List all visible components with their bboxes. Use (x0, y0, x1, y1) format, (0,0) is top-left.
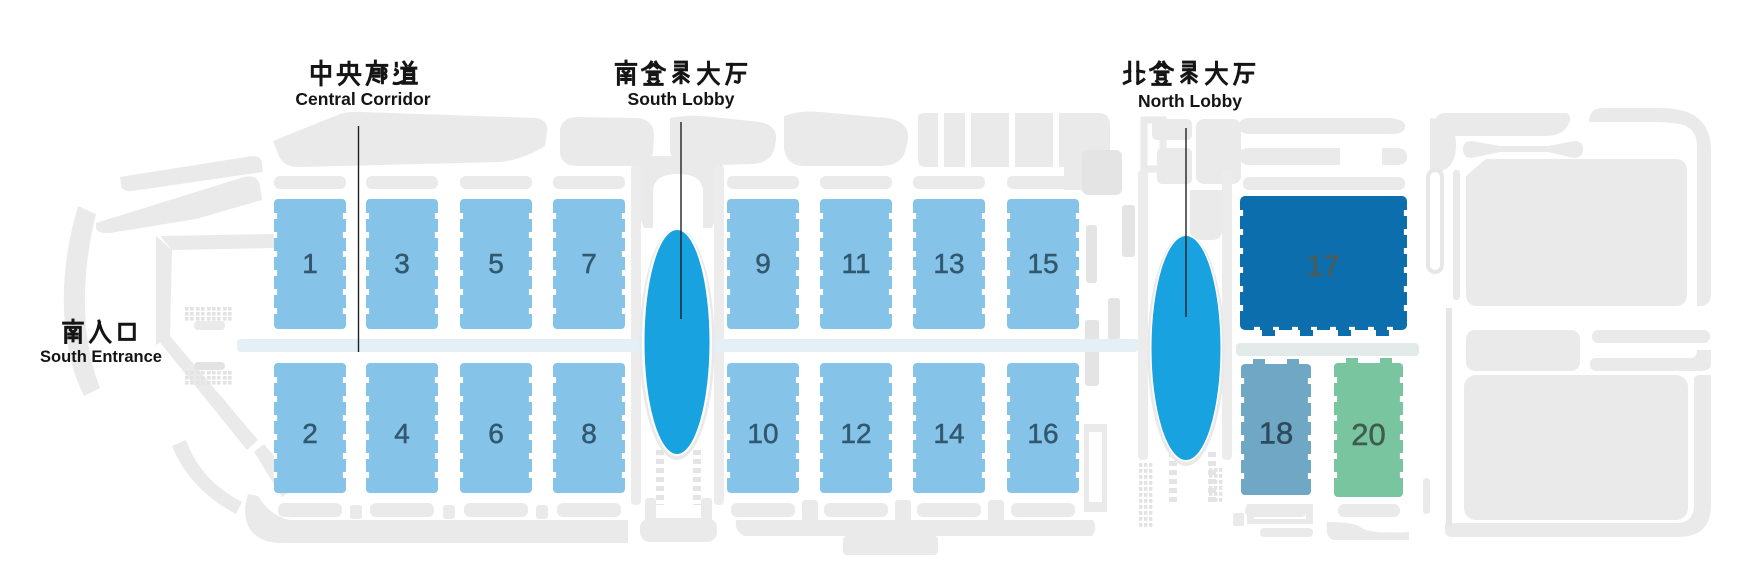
svg-text:South Entrance: South Entrance (40, 348, 162, 366)
svg-text:12: 12 (840, 418, 871, 449)
svg-text:20: 20 (1351, 417, 1385, 452)
svg-text:7: 7 (581, 248, 597, 279)
svg-text:16: 16 (1027, 418, 1058, 449)
svg-text:18: 18 (1259, 416, 1293, 451)
svg-text:14: 14 (933, 418, 964, 449)
svg-text:10: 10 (747, 418, 778, 449)
svg-text:5: 5 (488, 248, 504, 279)
svg-text:4: 4 (394, 418, 410, 449)
svg-text:17: 17 (1306, 250, 1339, 283)
svg-text:15: 15 (1027, 248, 1058, 279)
svg-text:2: 2 (302, 418, 318, 449)
svg-text:1: 1 (302, 248, 318, 279)
svg-text:9: 9 (755, 248, 771, 279)
svg-text:North Lobby: North Lobby (1138, 91, 1242, 111)
svg-text:6: 6 (488, 418, 504, 449)
svg-text:Central Corridor: Central Corridor (295, 89, 430, 109)
svg-text:11: 11 (841, 248, 870, 279)
svg-text:3: 3 (394, 248, 410, 279)
svg-text:13: 13 (933, 248, 964, 279)
svg-text:8: 8 (581, 418, 597, 449)
svg-text:South Lobby: South Lobby (628, 89, 735, 109)
